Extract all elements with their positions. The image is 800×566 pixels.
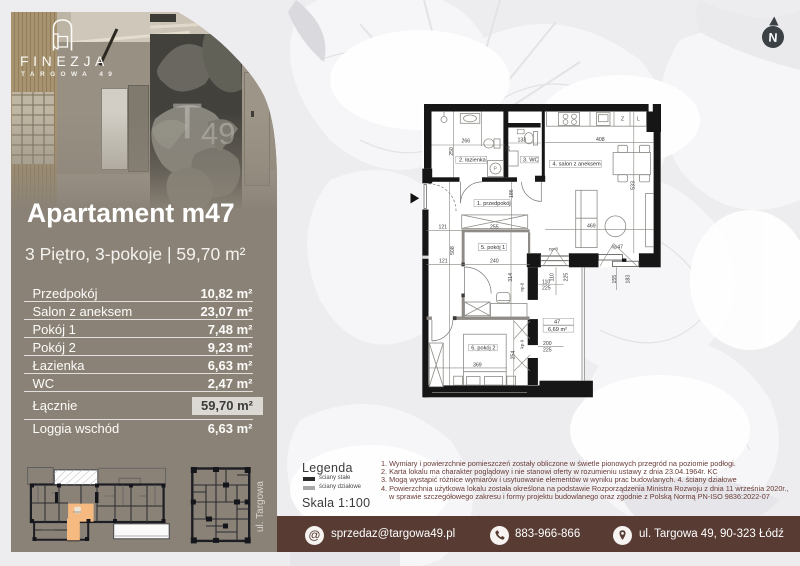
svg-text:266: 266: [462, 139, 471, 145]
svg-text:4. salon z aneksem: 4. salon z aneksem: [553, 162, 602, 168]
svg-text:469: 469: [587, 224, 596, 230]
svg-text:408: 408: [596, 137, 605, 143]
svg-text:255: 255: [490, 224, 499, 230]
svg-text:133: 133: [518, 138, 527, 144]
svg-text:np-6: np-6: [520, 282, 525, 291]
svg-text:225: 225: [564, 273, 570, 282]
svg-text:314: 314: [508, 273, 514, 282]
svg-text:155: 155: [612, 275, 618, 284]
svg-text:186: 186: [509, 189, 515, 198]
svg-text:200: 200: [543, 341, 552, 347]
svg-text:Z: Z: [621, 117, 624, 123]
svg-text:5. pokój 1: 5. pokój 1: [481, 245, 505, 251]
svg-text:533: 533: [630, 181, 636, 190]
svg-text:1. przedpokój: 1. przedpokój: [477, 201, 511, 207]
svg-text:225: 225: [542, 286, 551, 292]
svg-text:kp-9: kp-9: [520, 339, 525, 348]
svg-text:369: 369: [473, 362, 482, 368]
svg-text:110: 110: [550, 273, 556, 281]
svg-text:121: 121: [439, 259, 448, 265]
svg-text:254: 254: [511, 351, 517, 360]
svg-text:47: 47: [554, 320, 560, 326]
svg-text:68: 68: [506, 146, 512, 152]
svg-text:6,69 m²: 6,69 m²: [548, 327, 567, 333]
svg-text:3. WC: 3. WC: [523, 157, 539, 163]
svg-text:183: 183: [626, 275, 632, 284]
svg-text:2. łazienka: 2. łazienka: [459, 158, 487, 164]
svg-text:225: 225: [543, 348, 552, 354]
svg-text:508: 508: [450, 246, 456, 255]
svg-text:250: 250: [449, 147, 455, 156]
svg-text:L: L: [637, 117, 640, 123]
svg-text:6. pokój 2: 6. pokój 2: [471, 346, 495, 352]
svg-text:121: 121: [439, 224, 448, 230]
svg-text:240: 240: [490, 259, 499, 265]
